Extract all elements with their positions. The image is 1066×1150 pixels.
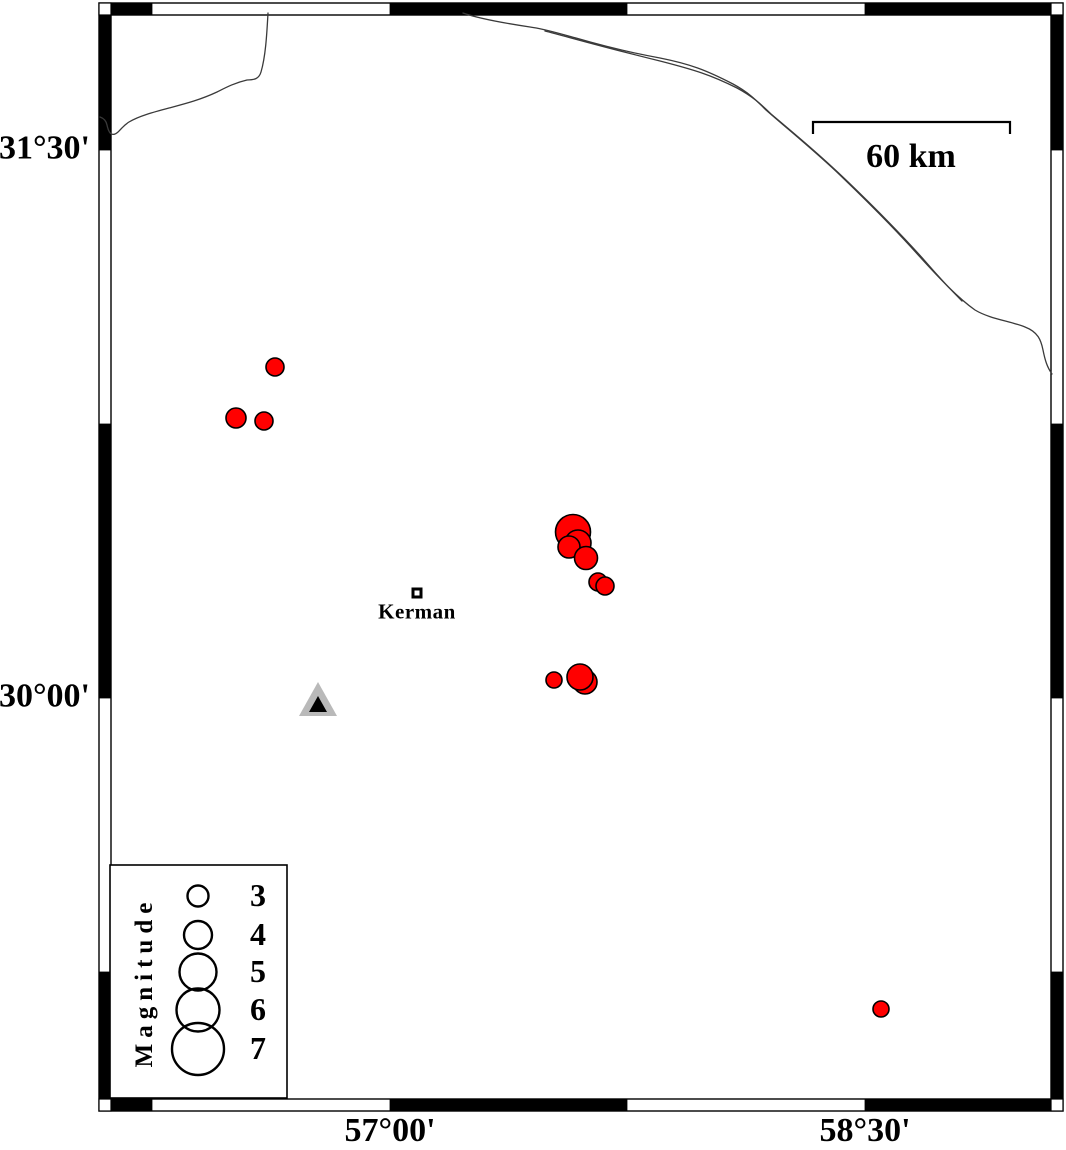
frame-corner	[99, 1099, 111, 1111]
legend-value-m4: 4	[250, 916, 266, 953]
river-lines	[100, 13, 1052, 374]
scale-bar-label: 60 km	[866, 138, 956, 176]
frame-segment	[865, 3, 1051, 15]
frame-segment	[390, 3, 627, 15]
earthquake-marker	[255, 412, 273, 430]
lon-label-58-30: 58°30'	[819, 1112, 910, 1150]
frame-segment	[1051, 424, 1063, 698]
frame-segment	[390, 1099, 627, 1111]
frame-segment	[99, 424, 111, 698]
legend-value-m5: 5	[250, 953, 266, 990]
earthquake-marker	[873, 1001, 889, 1017]
earthquake-marker	[567, 664, 593, 690]
city-square-inner	[415, 591, 420, 596]
frame-segment	[111, 3, 152, 15]
frame-corner	[1051, 1099, 1063, 1111]
earthquake-marker	[575, 547, 598, 570]
river-line-northwest	[100, 13, 268, 134]
frame-segment	[99, 15, 111, 150]
legend-value-m6: 6	[250, 991, 266, 1028]
frame-corner	[1051, 3, 1063, 15]
earthquake-marker	[226, 408, 246, 428]
legend-value-m7: 7	[250, 1030, 266, 1067]
city-label-kerman: Kerman	[378, 600, 456, 625]
earthquake-markers	[226, 358, 889, 1017]
earthquake-marker	[546, 672, 562, 688]
scale-bar-bracket	[813, 122, 1010, 134]
lon-label-57-00: 57°00'	[344, 1112, 435, 1150]
lat-label-31-30: 31°30'	[0, 129, 90, 167]
river-line-main	[463, 13, 1052, 374]
earthquake-marker	[266, 358, 284, 376]
frame-segment	[1051, 972, 1063, 1099]
station-triangle	[299, 682, 337, 716]
legend-title: Magnitude	[131, 897, 159, 1068]
lat-label-30-00: 30°00'	[0, 677, 90, 715]
frame-segment	[1051, 15, 1063, 150]
city-marker-kerman	[412, 588, 423, 599]
frame-segment	[865, 1099, 1051, 1111]
legend-value-m3: 3	[250, 877, 266, 914]
frame-segment	[111, 1099, 152, 1111]
frame-corner	[99, 3, 111, 15]
earthquake-marker	[596, 577, 614, 595]
scale-bar	[813, 122, 1010, 134]
map-canvas: 31°30' 30°00' 57°00' 58°30' 60 km Kerman…	[0, 0, 1066, 1150]
